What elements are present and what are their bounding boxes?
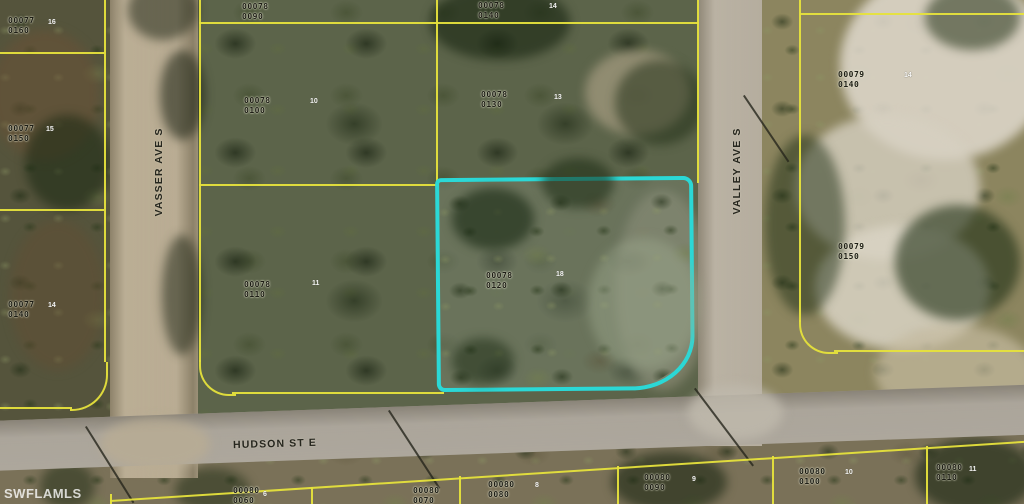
tree-clump [615,60,705,145]
mls-watermark: SWFLAMLS [4,486,82,501]
lot-number-mark: 8 [535,482,539,489]
parcel-line [199,0,201,362]
parcel-label: 000780140 [478,1,505,21]
parcel-label: 000800070 [413,486,440,504]
street-label-valley: VALLEY AVE S [731,128,743,215]
parcel-label: 000800060 [233,486,260,504]
lot-number-mark: 14 [48,302,56,309]
parcel-line [772,456,774,504]
lot-number-mark: 13 [554,94,562,101]
parcel-label: 000800080 [488,480,515,500]
parcel-line [834,350,1024,352]
lot-number-mark: 16 [48,19,56,26]
parcel-line [436,0,438,184]
intersection-apron [688,385,783,440]
tree-clump [452,188,534,250]
lot-number-mark: 18 [556,271,564,278]
lot-number-mark: 10 [845,469,853,476]
parcel-line [311,487,313,504]
tree-clump [895,205,1020,320]
parcel-label: 000790150 [838,242,865,262]
parcel-line [459,476,461,504]
parcel-line [0,407,72,409]
parcel-label: 000780090 [242,2,269,22]
parcel-line [199,22,699,24]
tree-clump [452,338,514,384]
parcel-label: 000800090 [644,473,671,493]
lot-number-mark: 10 [310,98,318,105]
valley-ave-road [698,0,762,446]
parcel-label: 000790140 [838,70,865,90]
intersection-apron [100,418,210,470]
parcel-label: 000800100 [799,467,826,487]
parcel-line [110,494,112,504]
parcel-label: 000800110 [936,463,963,483]
lot-number-mark: 9 [692,476,696,483]
tree-clump [765,135,845,315]
parcel-label: 000770150 [8,124,35,144]
brush-patch [10,220,105,370]
lot-number-mark: 15 [46,126,54,133]
lot-number-mark: 11 [969,466,976,473]
parcel-line [926,446,928,504]
tree-overhang-shadow [162,235,202,355]
lot-number-mark: 14 [904,72,912,79]
lot-number-mark: 6 [263,491,267,498]
parcel-label: 000780130 [481,90,508,110]
parcel-label: 000770160 [8,16,35,36]
parcel-label: 000780110 [244,280,271,300]
parcel-label: 000770140 [8,300,35,320]
street-label-vasser: VASSER AVE S [153,128,165,217]
parcel-line [104,0,106,362]
parcel-label: 000780100 [244,96,271,116]
tree-clump [542,158,614,208]
street-label-hudson: HUDSON ST E [233,437,317,451]
parcel-line [697,0,699,183]
parcel-line [232,392,444,394]
lot-number-mark: 11 [312,280,319,287]
parcel-line [199,184,439,186]
parcel-line [799,0,801,322]
parcel-line [0,52,104,54]
lot-number-mark: 14 [549,3,557,10]
parcel-line [617,466,619,504]
tree-clump [25,115,110,210]
parcel-line [800,13,1024,15]
aerial-map[interactable]: 0007701600007701500007701400007800900007… [0,0,1024,504]
parcel-label: 000780120 [486,271,513,291]
grass-patch [588,238,700,370]
parcel-line [0,209,104,211]
